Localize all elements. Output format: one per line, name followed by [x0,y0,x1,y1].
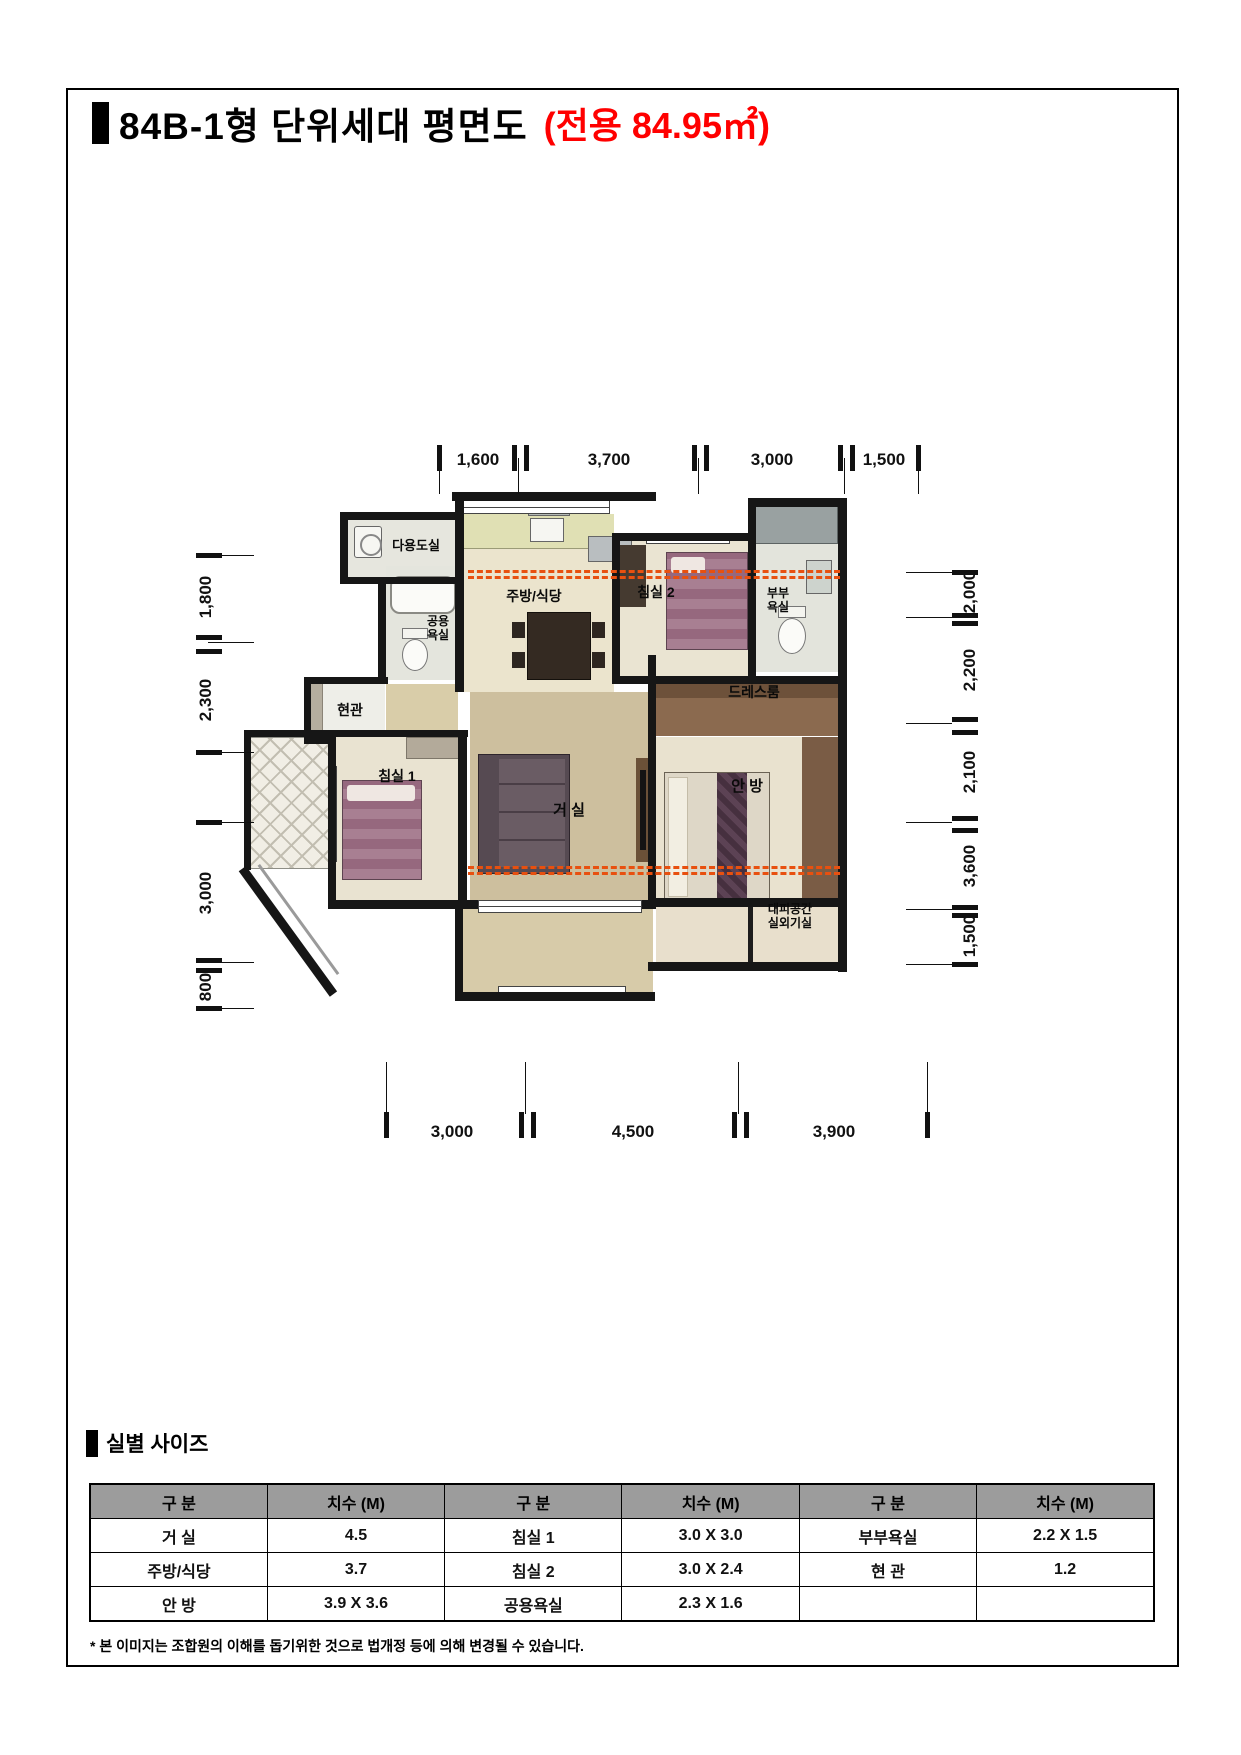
table-cell: 3.0 X 2.4 [622,1553,799,1587]
dimension-line [738,1062,739,1114]
dimension-line [927,1062,928,1114]
wall [648,655,656,738]
wall [748,498,756,676]
wall [340,512,460,520]
section-heading-row: 실별 사이즈 [86,1428,208,1458]
section-line [468,872,840,875]
dimension-label: 1,800 [196,565,216,629]
room-label-bedroom2: 침실 2 [626,584,686,601]
table-cell: 3.9 X 3.6 [267,1587,444,1622]
wall [378,577,386,684]
dimension-line [439,458,440,494]
dimension-tick [952,816,978,821]
table-cell: 2.3 X 1.6 [622,1587,799,1622]
room-label-line: 공용 [420,614,456,628]
dimension-tick [838,445,843,471]
chair-icon [512,652,525,668]
dimension-line [906,964,952,965]
dimension-tick [732,1112,737,1138]
sink-icon [530,518,564,542]
wall [340,512,348,584]
dimension-line [208,642,254,643]
dimension-tick [952,717,978,722]
room-label-living: 거 실 [538,802,600,820]
room-label-master-bedroom: 안 방 [716,778,778,796]
table-row: 안 방 3.9 X 3.6 공용욕실 2.3 X 1.6 [90,1587,1154,1622]
room-label-kitchen: 주방/식당 [492,588,576,605]
closet-icon [406,737,462,759]
dimension-label: 4,500 [601,1122,665,1142]
wall [244,730,334,737]
dimension-label: 3,000 [196,861,216,925]
dimension-tick [512,445,517,471]
section-bullet-icon [86,1430,98,1457]
wall [455,992,655,1001]
dimension-label: 800 [196,955,216,1019]
dimension-line [906,572,952,573]
table-cell: 공용욕실 [445,1587,622,1622]
dimension-line [906,723,952,724]
wall [455,577,464,637]
dimension-line [518,458,519,494]
diagonal-wall [239,866,337,997]
room-label-master-bath: 부부 욕실 [758,586,798,615]
table-cell: 주방/식당 [90,1553,267,1587]
dimension-line [208,822,254,823]
dimension-label: 3,600 [960,834,980,898]
wall [455,908,463,994]
window [478,900,642,913]
table-cell [799,1587,976,1622]
table-cell: 부부욕실 [799,1519,976,1553]
table-cell: 안 방 [90,1587,267,1622]
wall [328,730,468,737]
table-header: 구 분 [90,1484,267,1519]
dimension-label: 3,000 [740,450,804,470]
wall [748,498,846,507]
dimension-line [906,909,952,910]
chair-icon [512,622,525,638]
wall [328,730,336,908]
tv-icon [640,770,646,850]
room-label-refuge: 대피공간 실외기실 [750,902,830,931]
dimension-line [208,752,254,753]
wall [340,577,464,584]
dimension-tick [744,1112,749,1138]
dimension-line [386,1062,387,1114]
dimension-line [906,822,952,823]
footnote: * 본 이미지는 조합원의 이해를 돕기위한 것으로 법개정 등에 의해 변경될… [90,1636,584,1656]
dimension-label: 1,500 [960,904,980,968]
bed-icon [342,780,422,880]
shower-box [754,506,838,544]
table-row: 주방/식당 3.7 침실 2 3.0 X 2.4 현 관 1.2 [90,1553,1154,1587]
hallway [386,684,458,732]
wall [612,533,620,683]
dimension-tick [519,1112,524,1138]
dimension-label: 2,300 [196,668,216,732]
wall [648,962,846,971]
pillow-icon [668,777,688,897]
room-label-line: 실외기실 [750,916,830,930]
table-cell: 침실 2 [445,1553,622,1587]
dimension-tick [692,445,697,471]
dimension-label: 2,100 [960,740,980,804]
floor-plan-page: 84B-1형 단위세대 평면도 (전용 84.95㎡) [0,0,1241,1755]
table-header-row: 구 분 치수 (M) 구 분 치수 (M) 구 분 치수 (M) [90,1484,1154,1519]
table-cell: 현 관 [799,1553,976,1587]
dimension-tick [524,445,529,471]
dimension-line [698,458,699,494]
dimension-line [918,458,919,494]
table-cell: 3.7 [267,1553,444,1587]
room-label-line: 부부 [758,586,798,600]
dining-table-icon [527,612,591,680]
room-label-line: 대피공간 [750,902,830,916]
wall [244,730,251,870]
dimension-tick [952,730,978,735]
toilet-bowl-icon [402,639,428,671]
table-cell: 2.2 X 1.5 [977,1519,1154,1553]
table-cell: 거 실 [90,1519,267,1553]
wall [304,677,388,684]
section-line [468,576,840,579]
dimension-tick [196,635,222,640]
dimension-label: 2,000 [960,560,980,624]
section-heading: 실별 사이즈 [106,1428,208,1458]
dimension-label: 2,200 [960,638,980,702]
chair-icon [592,622,605,638]
room-label-entrance: 현관 [324,702,376,719]
dimension-line [844,458,845,494]
washing-machine-icon [354,526,382,558]
room-label-line: 욕실 [758,600,798,614]
table-header: 치수 (M) [267,1484,444,1519]
pillow-icon [347,785,415,801]
room-label-utility: 다용도실 [380,538,452,554]
wall [612,533,752,541]
table-cell: 3.0 X 3.0 [622,1519,799,1553]
room-label-dressroom: 드레스룸 [706,684,802,701]
dimension-label: 3,000 [420,1122,484,1142]
room-label-common-bath: 공용 욕실 [420,614,456,643]
wall [648,728,656,906]
dimension-label: 3,900 [802,1122,866,1142]
dimension-tick [196,649,222,654]
wall [452,492,656,501]
dimension-tick [704,445,709,471]
dimension-label: 1,600 [446,450,510,470]
room-size-table: 구 분 치수 (M) 구 분 치수 (M) 구 분 치수 (M) 거 실 4.5… [89,1483,1155,1622]
table-cell: 1.2 [977,1553,1154,1587]
table-header: 치수 (M) [622,1484,799,1519]
shoe-cabinet-icon [311,683,323,735]
room-label-bedroom1: 침실 1 [366,768,428,785]
dimension-tick [925,1112,930,1138]
table-header: 구 분 [445,1484,622,1519]
dimension-line [208,555,254,556]
dimension-label: 3,700 [577,450,641,470]
room-label-line: 욕실 [420,628,456,642]
table-cell: 4.5 [267,1519,444,1553]
dimension-tick [952,828,978,833]
table-header: 구 분 [799,1484,976,1519]
dimension-tick [384,1112,389,1138]
bed-icon [666,552,748,650]
dimension-label: 1,500 [852,450,916,470]
chair-icon [592,652,605,668]
toilet-bowl-icon [778,618,806,654]
washing-machine-drum [360,534,382,556]
table-header: 치수 (M) [977,1484,1154,1519]
dimension-line [906,617,952,618]
dimension-line [525,1062,526,1114]
table-row: 거 실 4.5 침실 1 3.0 X 3.0 부부욕실 2.2 X 1.5 [90,1519,1154,1553]
wall [458,730,467,908]
entry-balcony [248,737,330,869]
section-line [468,866,840,869]
section-line [468,570,840,573]
dimension-tick [531,1112,536,1138]
living-balcony [463,908,653,992]
table-cell [977,1587,1154,1622]
table-cell: 침실 1 [445,1519,622,1553]
window [458,500,610,514]
